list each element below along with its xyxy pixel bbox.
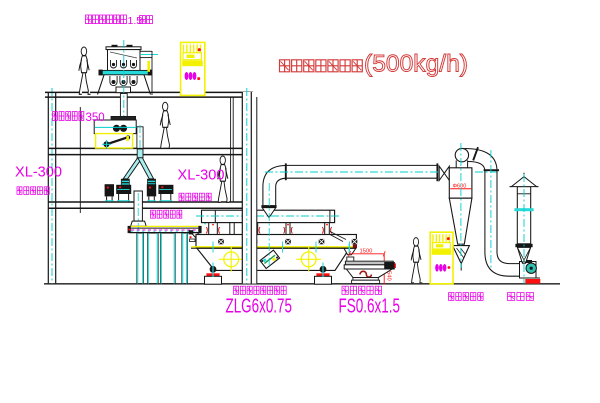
svg-text:Φ600: Φ600	[453, 183, 467, 189]
svg-text:1500: 1500	[360, 249, 373, 255]
svg-text:350: 350	[86, 112, 105, 124]
svg-text:ZLG6x0.75: ZLG6x0.75	[226, 296, 293, 318]
svg-text:XL-300: XL-300	[15, 165, 62, 181]
svg-text:XL-300: XL-300	[178, 168, 225, 184]
svg-text:FS0.6x1.5: FS0.6x1.5	[339, 296, 401, 318]
svg-text:(500kg/h): (500kg/h)	[364, 51, 468, 78]
svg-text:1.5: 1.5	[128, 15, 143, 27]
